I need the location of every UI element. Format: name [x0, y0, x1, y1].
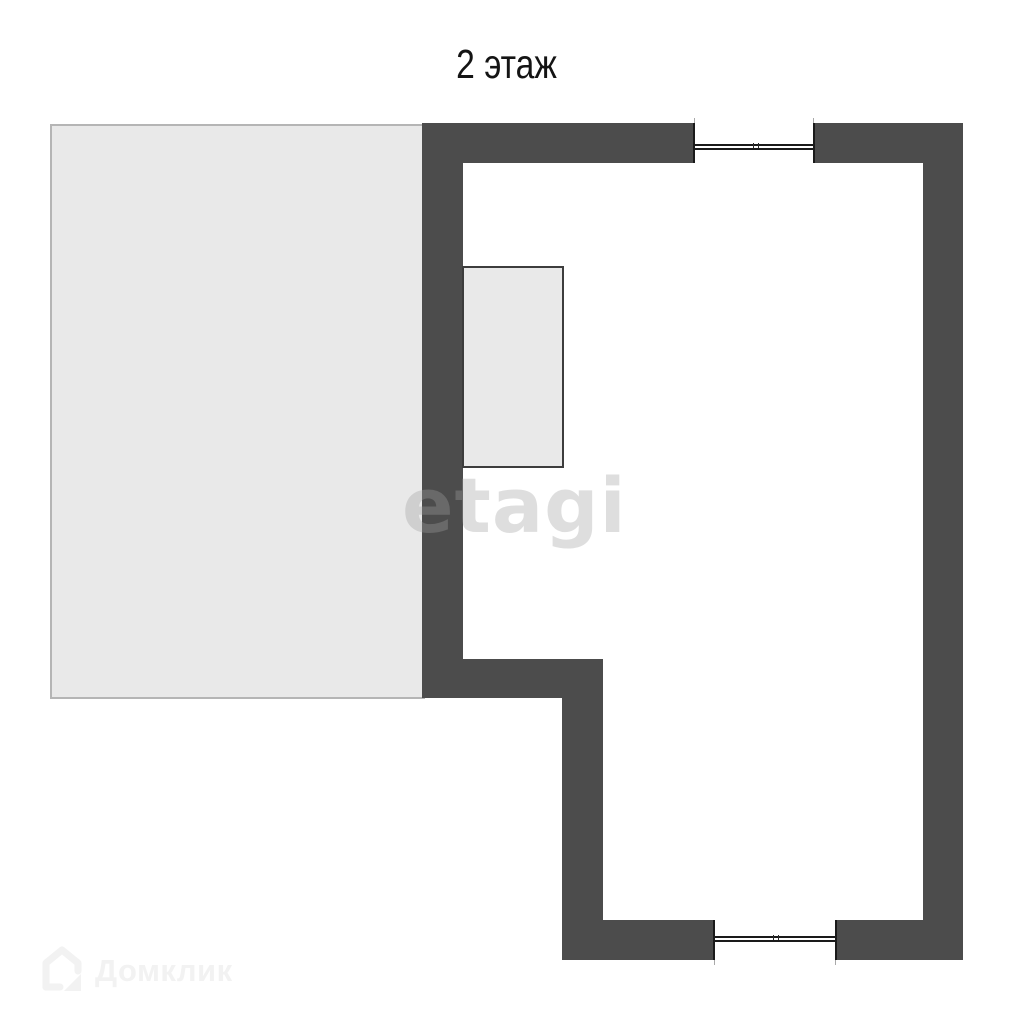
window-jamb-tick [694, 118, 695, 123]
closet-block [462, 266, 564, 468]
unlabeled-area [50, 124, 425, 699]
etagi-watermark: etagi [402, 468, 627, 544]
window-jamb-tick [714, 960, 715, 965]
floorplan-canvas: 2 этаж etagi Домклик [0, 0, 1013, 1013]
window-glass-line [695, 144, 813, 146]
window-center-tick [758, 143, 759, 148]
window-glass-line [715, 936, 835, 938]
house-icon [36, 944, 86, 997]
window-bottom [713, 920, 837, 960]
window-top [693, 123, 815, 163]
domclick-logo: Домклик [36, 944, 233, 997]
wall-left [422, 123, 463, 698]
window-center-tick [778, 935, 779, 940]
domclick-label: Домклик [95, 947, 233, 995]
wall-step [422, 659, 603, 698]
wall-right [923, 123, 963, 960]
window-glass-line [695, 148, 813, 150]
window-jamb-tick [813, 118, 814, 123]
window-glass-line [715, 940, 835, 942]
window-jamb-tick [835, 960, 836, 965]
window-center-tick [753, 143, 754, 148]
window-center-tick [773, 935, 774, 940]
floor-title: 2 этаж [91, 44, 922, 85]
